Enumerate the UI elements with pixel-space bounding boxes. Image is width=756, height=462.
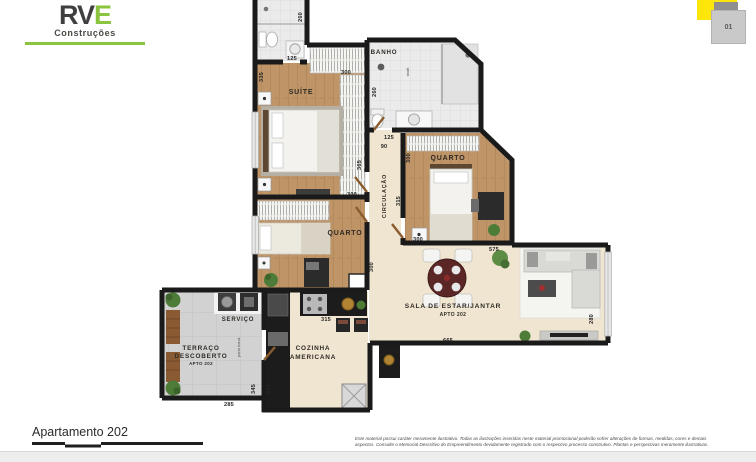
dim-quarto-l-h: 300 <box>369 262 375 272</box>
circulacao-label: CIRCULAÇÃO <box>381 174 388 218</box>
quarto-right-wardrobe <box>407 136 479 151</box>
dim-sala-top: 575 <box>489 247 499 253</box>
sala-window <box>605 252 612 336</box>
terraco-label-1: TERRAÇO <box>182 345 219 352</box>
dim-hall-w: 90 <box>381 144 388 150</box>
suite-window <box>252 112 259 168</box>
dim-terraco-h: 345 <box>251 384 257 394</box>
suite-label: SUÍTE <box>289 87 314 96</box>
quarto-left-label: QUARTO <box>327 230 362 237</box>
logo-subtitle: Construções <box>25 28 145 38</box>
logo-e: E <box>94 0 111 30</box>
suite-wardrobe-side <box>340 75 365 195</box>
cozinha-label-2: AMERICANA <box>290 354 336 361</box>
quarto-right-label: QUARTO <box>430 155 465 162</box>
suite-wardrobe-top <box>310 47 365 73</box>
company-logo: RVE Construções <box>25 0 145 45</box>
dim-quarto-r-w: 300 <box>413 237 423 243</box>
dim-terraco-w: 285 <box>224 402 234 408</box>
logo-underline <box>25 42 145 45</box>
quarto-left-window <box>252 216 259 254</box>
dim-bath1-h: 260 <box>298 12 304 22</box>
dim-cozinha-w: 315 <box>321 317 331 323</box>
scale-bar <box>32 442 203 448</box>
dim-banho-h: 260 <box>372 87 378 97</box>
legal-disclaimer: Este material possui caráter meramente i… <box>355 436 751 448</box>
key-plan-unit-number: 01 <box>725 24 733 31</box>
banho-label: BANHO <box>371 49 398 56</box>
disclaimer-line-2: aspectos. Consulte o Memorial Descritivo… <box>355 442 751 448</box>
building-key-plan: 01 <box>695 0 756 50</box>
dim-suite-w: 300 <box>341 70 351 76</box>
door-note-label: porta band. <box>236 337 241 357</box>
dim-suite-total: 365 <box>357 160 363 170</box>
dim-quarto-r-h: 300 <box>406 153 412 163</box>
terraco-label-2: DESCOBERTO <box>175 353 228 360</box>
servico-label: SERVIÇO <box>222 317 255 323</box>
dim-sala-w: 665 <box>443 338 453 344</box>
dim-sala-h: 280 <box>589 314 595 324</box>
sala-apto-label: APTO 202 <box>440 312 467 318</box>
sala-label: SALA DE ESTAR/JANTAR <box>405 303 501 310</box>
dim-bath1-w: 125 <box>287 56 297 62</box>
bottom-strip <box>0 451 756 462</box>
terraco-apto-label: APTO 202 <box>189 361 213 366</box>
logo-brand-text: RVE <box>25 2 145 29</box>
dim-banho-w: 125 <box>384 135 394 141</box>
plan-title: Apartamento 202 <box>32 425 128 439</box>
shaft-label: shaft <box>405 67 410 77</box>
dim-circ-h: 315 <box>396 196 402 206</box>
quarto-left-wardrobe <box>257 201 329 220</box>
key-plan-unit: 01 <box>711 10 746 44</box>
floor-plan-svg: BANHO SUÍTE QUARTO QUARTO CIRCULAÇÃO SAL… <box>0 0 756 462</box>
logo-rv: RV <box>59 0 94 30</box>
cozinha-label-1: COZINHA <box>296 345 331 352</box>
dim-quarto-l-w: 300 <box>347 192 357 198</box>
floor-plan-page: BANHO SUÍTE QUARTO QUARTO CIRCULAÇÃO SAL… <box>0 0 756 462</box>
dim-cozinha-h: 335 <box>266 384 272 394</box>
dim-suite-left: 335 <box>259 72 265 82</box>
